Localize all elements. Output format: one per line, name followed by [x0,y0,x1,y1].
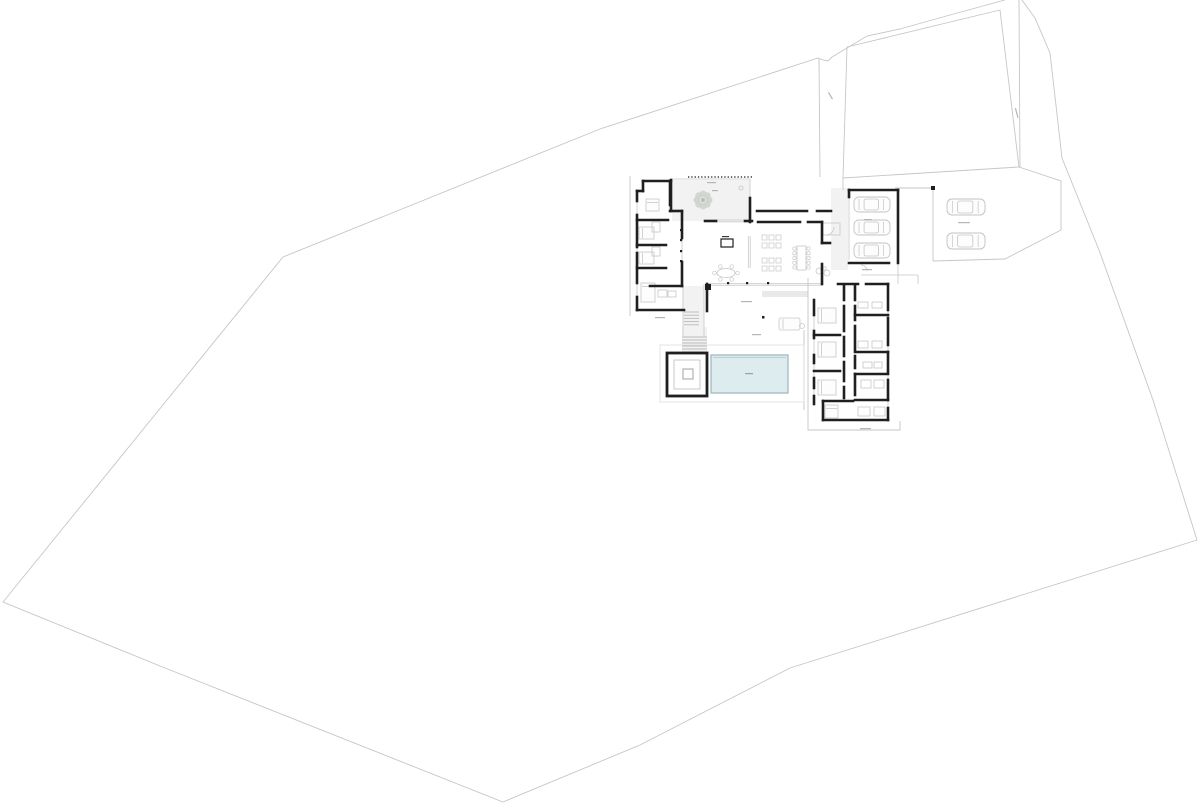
bed-icon [818,380,836,395]
car-icon [947,199,985,215]
property-boundary-and-driveway [3,0,1197,802]
tree-icon [694,191,713,210]
bath-fixture-icon [872,341,882,348]
bed-icon [646,199,659,211]
visitor-cars [947,199,985,249]
bath-fixture-icon [658,290,667,297]
car-icon [854,220,890,235]
bed-icon [825,405,838,418]
bath-fixture-icon [858,341,868,348]
car-icon [854,197,890,212]
garage-cars [854,197,890,258]
lift-shaft [721,239,733,247]
car-icon [947,233,985,249]
bath-fixture-icon [874,362,882,368]
bath-fixture-icon [858,302,868,308]
bed-icon [818,342,836,357]
round-table-icon [713,265,740,282]
car-icon [854,243,890,258]
daybed-icon [779,318,805,330]
lounge-seating-icon [762,235,781,271]
bath-fixture-icon [858,407,870,416]
site-plan-svg [0,0,1200,806]
plan-sheet [0,0,1200,806]
bath-fixture-icon [863,362,872,368]
bath-fixture-icon [668,291,676,297]
bath-fixture-icon [874,407,885,416]
bath-fixture-icon [874,380,884,388]
bath-fixture-icon [861,380,871,388]
bath-fixture-icon [872,302,882,308]
bed-icon [818,308,836,323]
dining-table-icon [793,246,810,270]
spa [667,353,707,396]
